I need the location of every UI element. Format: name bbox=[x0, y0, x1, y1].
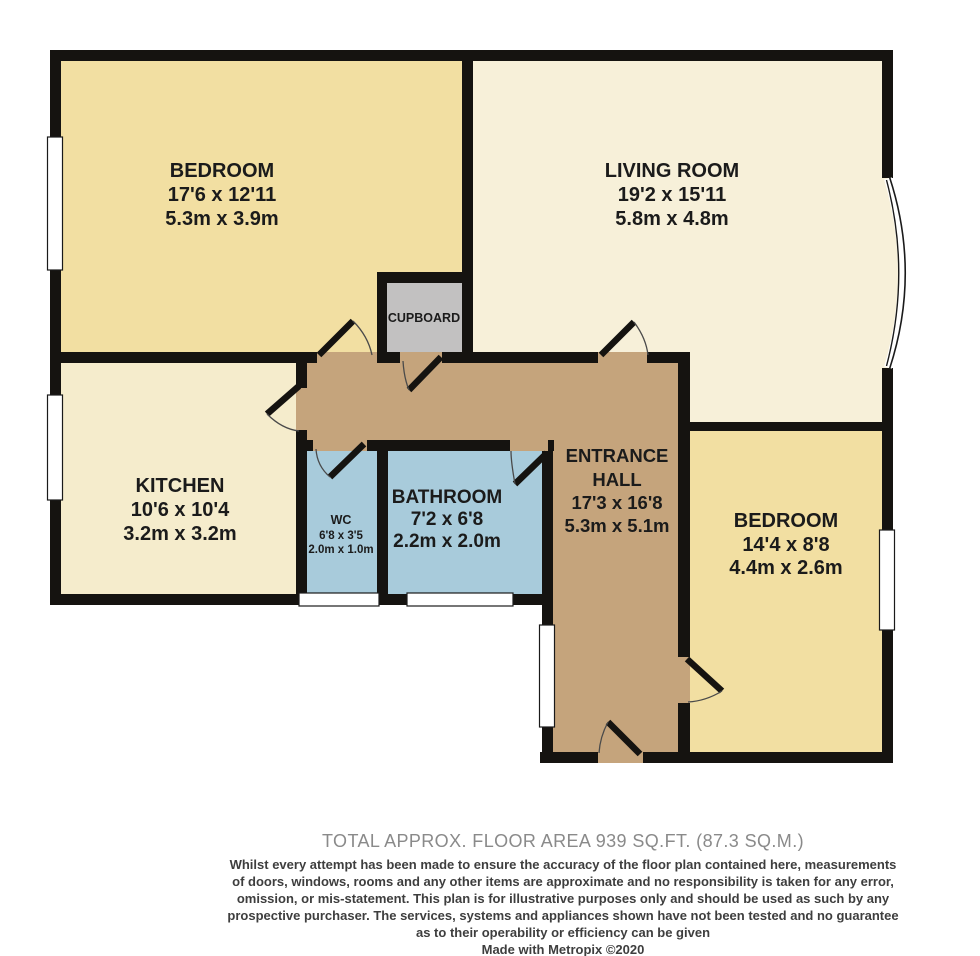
wall-segment bbox=[367, 440, 510, 451]
label-living-metric: 5.8m x 4.8m bbox=[615, 208, 728, 230]
wall-segment bbox=[296, 430, 307, 605]
wall-segment bbox=[462, 352, 598, 363]
window-bathroom-bottom bbox=[407, 593, 513, 606]
label-bedroom-tl-imperial: 17'6 x 12'11 bbox=[168, 184, 277, 206]
label-wc-metric: 2.0m x 1.0m bbox=[308, 544, 373, 556]
disclaimer-line: as to their operability or efficiency ca… bbox=[146, 924, 980, 941]
wall-segment bbox=[540, 752, 893, 763]
label-hall-metric: 5.3m x 5.1m bbox=[565, 515, 670, 536]
label-hall-name-line1: ENTRANCE bbox=[566, 445, 669, 466]
wall-segment bbox=[296, 440, 313, 451]
label-kitchen-metric: 3.2m x 3.2m bbox=[123, 523, 236, 545]
wall-segment bbox=[462, 50, 473, 362]
wall-segment bbox=[377, 272, 473, 283]
wall-segment bbox=[50, 352, 317, 363]
label-hall-name-line2: HALL bbox=[592, 469, 641, 490]
wall-segment bbox=[377, 272, 387, 363]
total-floor-area: TOTAL APPROX. FLOOR AREA 939 SQ.FT. (87.… bbox=[146, 831, 980, 852]
room-fill-living-room bbox=[468, 55, 888, 357]
wall-segment bbox=[296, 362, 307, 388]
label-kitchen-name: KITCHEN bbox=[136, 475, 225, 497]
wall-segment bbox=[377, 440, 388, 605]
wall-segment bbox=[442, 352, 462, 363]
disclaimer-line: of doors, windows, rooms and any other i… bbox=[146, 873, 980, 890]
footer-text: TOTAL APPROX. FLOOR AREA 939 SQ.FT. (87.… bbox=[146, 831, 980, 956]
threshold-bathroom-overlay bbox=[510, 440, 548, 451]
label-wc-imperial: 6'8 x 3'5 bbox=[319, 530, 363, 542]
floorplan-page: BEDROOM 17'6 x 12'11 5.3m x 3.9m LIVING … bbox=[0, 0, 980, 956]
label-living-imperial: 19'2 x 15'11 bbox=[618, 184, 727, 206]
window-kitchen-left bbox=[48, 395, 63, 500]
label-bathroom-imperial: 7'2 x 6'8 bbox=[411, 509, 483, 530]
room-fill-bedroom-right bbox=[684, 427, 888, 757]
label-cupboard: CUPBOARD bbox=[388, 311, 460, 325]
label-bathroom-metric: 2.2m x 2.0m bbox=[393, 531, 501, 552]
room-fill-hall-strip bbox=[302, 357, 683, 445]
wall-segment bbox=[678, 422, 893, 431]
disclaimer-line: Whilst every attempt has been made to en… bbox=[146, 856, 980, 873]
window-wc-bottom bbox=[299, 593, 379, 606]
disclaimer-line: omission, or mis-statement. This plan is… bbox=[146, 890, 980, 907]
window-bedroom-tl-left bbox=[48, 137, 63, 270]
label-bedroom-r-imperial: 14'4 x 8'8 bbox=[742, 534, 829, 556]
room-fill-living-room-lower bbox=[684, 352, 888, 427]
label-hall-imperial: 17'3 x 16'8 bbox=[571, 492, 662, 513]
label-living-name: LIVING ROOM bbox=[605, 160, 739, 182]
label-bedroom-r-metric: 4.4m x 2.6m bbox=[729, 557, 842, 579]
disclaimer-line: prospective purchaser. The services, sys… bbox=[146, 907, 980, 924]
label-bedroom-tl-metric: 5.3m x 3.9m bbox=[165, 208, 278, 230]
threshold-kitchen-overlay bbox=[296, 388, 307, 430]
label-kitchen-imperial: 10'6 x 10'4 bbox=[131, 499, 230, 521]
label-bathroom-name: BATHROOM bbox=[392, 487, 502, 508]
wall-segment bbox=[882, 50, 893, 178]
label-bedroom-r-name: BEDROOM bbox=[734, 510, 838, 532]
label-bedroom-tl-name: BEDROOM bbox=[170, 160, 274, 182]
wall-segment bbox=[387, 352, 400, 363]
floorplan-drawing: BEDROOM 17'6 x 12'11 5.3m x 3.9m LIVING … bbox=[0, 0, 980, 820]
window-bedroom-right bbox=[880, 530, 895, 630]
window-hall-left bbox=[540, 625, 555, 727]
metropix-credit: Made with Metropix ©2020 bbox=[146, 941, 980, 956]
threshold-bedroom-tl-overlay bbox=[317, 352, 377, 363]
label-wc-name: WC bbox=[331, 513, 352, 527]
